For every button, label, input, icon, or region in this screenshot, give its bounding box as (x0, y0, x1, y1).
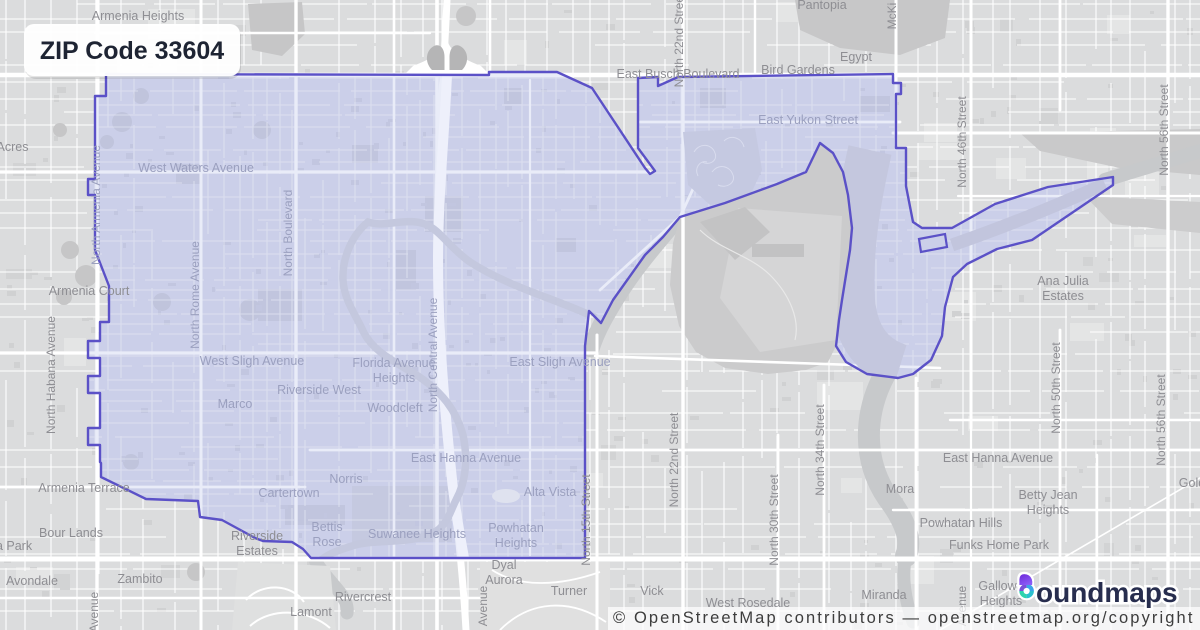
svg-text:Bettis: Bettis (311, 520, 342, 534)
svg-text:ZIP Code 33604: ZIP Code 33604 (40, 37, 224, 65)
svg-text:a Park: a Park (0, 539, 33, 553)
svg-text:Avenue: Avenue (476, 585, 490, 626)
svg-text:Armenia Terrace: Armenia Terrace (38, 481, 130, 495)
svg-text:Powhatan: Powhatan (488, 521, 544, 535)
svg-text:Gold: Gold (1179, 476, 1200, 490)
svg-text:Bird Gardens: Bird Gardens (761, 63, 835, 77)
svg-text:Ana Julia: Ana Julia (1037, 274, 1088, 288)
svg-text:North 34th Street: North 34th Street (813, 404, 827, 496)
svg-text:Cartertown: Cartertown (258, 486, 319, 500)
svg-text:© OpenStreetMap contributors —: © OpenStreetMap contributors — openstree… (613, 609, 1195, 627)
svg-text:North 50th Street: North 50th Street (1049, 342, 1063, 434)
svg-text:North 30th Street: North 30th Street (767, 474, 781, 566)
svg-text:Heights: Heights (495, 536, 537, 550)
svg-text:Heights: Heights (373, 371, 415, 385)
svg-text:Alta Vista: Alta Vista (524, 485, 577, 499)
svg-text:North Habana Avenue: North Habana Avenue (44, 316, 58, 434)
svg-text:Miranda: Miranda (861, 588, 906, 602)
svg-text:McKi: McKi (885, 3, 899, 30)
svg-text:Norris: Norris (329, 472, 362, 486)
svg-text:Mora: Mora (886, 482, 915, 496)
svg-text:North 22nd Street: North 22nd Street (667, 412, 681, 507)
svg-text:Rivercrest: Rivercrest (335, 590, 392, 604)
svg-text:Marco: Marco (218, 397, 253, 411)
svg-text:Armenia Court: Armenia Court (49, 284, 130, 298)
svg-text:Turner: Turner (551, 584, 587, 598)
svg-text:West Sligh Avenue: West Sligh Avenue (200, 354, 305, 368)
svg-text:East Hanna Avenue: East Hanna Avenue (943, 451, 1053, 465)
svg-text:Heights: Heights (980, 594, 1022, 608)
svg-text:Avenue: Avenue (87, 591, 101, 630)
svg-text:Aurora: Aurora (485, 573, 523, 587)
svg-text:Zambito: Zambito (117, 572, 162, 586)
svg-text:Estates: Estates (236, 544, 278, 558)
svg-text:Lamont: Lamont (290, 605, 332, 619)
svg-text:Vick: Vick (640, 584, 664, 598)
svg-text:Woodcleft: Woodcleft (367, 401, 423, 415)
svg-text:Egypt: Egypt (840, 50, 872, 64)
svg-text:East Hanna Avenue: East Hanna Avenue (411, 451, 521, 465)
svg-text:North 46th Street: North 46th Street (955, 96, 969, 188)
svg-text:Florida Avenue: Florida Avenue (352, 356, 435, 370)
svg-text:s Acres: s Acres (0, 140, 29, 154)
svg-text:North 56th Street: North 56th Street (1154, 374, 1168, 466)
svg-text:East Sligh Avenue: East Sligh Avenue (509, 355, 610, 369)
svg-text:Funks Home Park: Funks Home Park (949, 538, 1050, 552)
svg-text:Powhatan Hills: Powhatan Hills (920, 516, 1003, 530)
svg-text:oundmaps: oundmaps (1036, 577, 1178, 608)
svg-text:North Rome Avenue: North Rome Avenue (188, 241, 202, 349)
svg-text:Rose: Rose (312, 535, 341, 549)
svg-text:Betty Jean: Betty Jean (1018, 488, 1077, 502)
svg-text:Bour Lands: Bour Lands (39, 526, 103, 540)
svg-text:West Waters Avenue: West Waters Avenue (138, 161, 254, 175)
svg-text:Gallowa: Gallowa (978, 579, 1023, 593)
svg-text:North 15th Street: North 15th Street (579, 474, 593, 566)
svg-text:North Central Avenue: North Central Avenue (426, 297, 440, 412)
svg-text:North 22nd Street: North 22nd Street (672, 0, 686, 87)
svg-text:Riverside West: Riverside West (277, 383, 361, 397)
svg-text:Heights: Heights (1027, 503, 1069, 517)
svg-text:Avondale: Avondale (6, 574, 58, 588)
svg-text:Pantopia: Pantopia (797, 0, 846, 12)
svg-text:North Boulevard: North Boulevard (281, 190, 295, 277)
svg-text:North 56th Street: North 56th Street (1157, 84, 1171, 176)
svg-text:Riverside: Riverside (231, 529, 283, 543)
svg-text:Armenia Heights: Armenia Heights (92, 9, 184, 23)
svg-text:Estates: Estates (1042, 289, 1084, 303)
svg-text:Dyal: Dyal (491, 558, 516, 572)
svg-text:East Yukon Street: East Yukon Street (758, 113, 858, 127)
svg-text:North Armenia Avenue: North Armenia Avenue (89, 145, 103, 265)
svg-text:Suwanee Heights: Suwanee Heights (368, 527, 466, 541)
